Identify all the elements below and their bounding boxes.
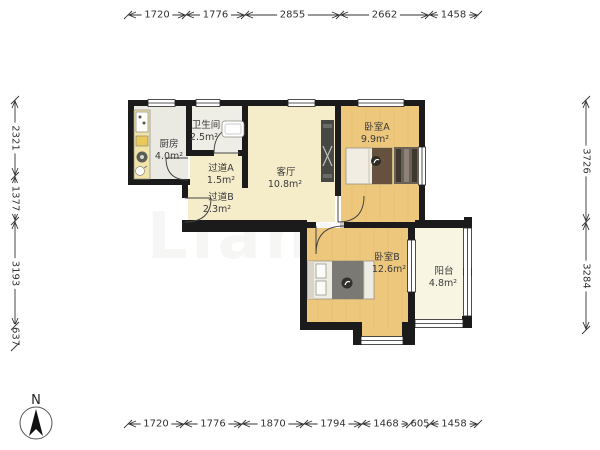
dimension-chain-bottom: 172017761870179414686051458 xyxy=(124,418,482,430)
dimension-chain-right: 37263284 xyxy=(580,96,592,334)
dimension-value: 1776 xyxy=(203,10,228,21)
compass: N xyxy=(20,393,52,439)
floor-plan-svg: Lianjia .com xyxy=(0,0,600,450)
svg-text:客厅: 客厅 xyxy=(276,166,296,178)
dimension-value: 1720 xyxy=(144,10,169,21)
dimension-value: 1458 xyxy=(441,10,466,21)
svg-text:4.0m²: 4.0m² xyxy=(155,151,183,162)
svg-text:过道A: 过道A xyxy=(208,162,234,174)
bed-a-icon xyxy=(346,148,392,184)
window-balcony-right xyxy=(464,228,472,316)
svg-text:10.8m²: 10.8m² xyxy=(268,179,302,190)
window-balcony-bottom xyxy=(415,320,463,328)
svg-text:2.3m²: 2.3m² xyxy=(203,204,231,215)
dimension-chain-top: 17201776285526621458 xyxy=(124,9,482,21)
window-kitchen xyxy=(148,100,175,107)
window-bathroom xyxy=(196,100,220,107)
svg-text:卧室B: 卧室B xyxy=(374,251,400,263)
svg-text:4.8m²: 4.8m² xyxy=(429,278,457,289)
tv-cabinet-icon xyxy=(321,120,334,182)
dimension-chain-left: 232113773193637 xyxy=(9,96,21,351)
svg-text:过道B: 过道B xyxy=(208,191,234,203)
dimension-value: 1720 xyxy=(143,419,168,430)
dimension-value: 1468 xyxy=(373,419,398,430)
svg-text:卫生间: 卫生间 xyxy=(192,119,221,131)
dimension-value: 3193 xyxy=(10,261,21,286)
bedroom-b-bay-floor xyxy=(362,322,403,338)
dimension-value: 1870 xyxy=(260,419,285,430)
floor-plan-screenshot: Lianjia .com xyxy=(0,0,600,450)
wardrobe-a-icon xyxy=(394,147,419,184)
dimension-value: 2321 xyxy=(10,125,21,150)
svg-text:2.5m²: 2.5m² xyxy=(190,132,218,143)
svg-text:厨房: 厨房 xyxy=(159,138,178,150)
balcony-sliding-door xyxy=(408,240,416,292)
dimension-value: 2662 xyxy=(372,10,397,21)
north-label: N xyxy=(31,393,41,408)
dimension-value: 1776 xyxy=(200,419,225,430)
window-bedroom-a-right xyxy=(419,147,426,185)
svg-text:阳台: 阳台 xyxy=(434,265,453,277)
kitchen-counter-icon xyxy=(134,110,150,179)
dimension-value: 1458 xyxy=(441,419,466,430)
window-living xyxy=(288,100,315,107)
dimension-value: 1377 xyxy=(10,186,21,211)
window-bay xyxy=(361,337,403,345)
bed-b-icon xyxy=(308,261,374,299)
svg-text:1.5m²: 1.5m² xyxy=(207,175,235,186)
dimension-value: 2855 xyxy=(280,10,305,21)
svg-text:9.9m²: 9.9m² xyxy=(361,134,389,145)
dimension-value: 1794 xyxy=(320,419,345,430)
svg-text:12.6m²: 12.6m² xyxy=(372,264,406,275)
dimension-value: 3284 xyxy=(581,263,592,288)
dimension-value: 3726 xyxy=(581,148,592,173)
svg-text:卧室A: 卧室A xyxy=(364,121,390,133)
window-bedroom-a-top xyxy=(358,100,404,107)
